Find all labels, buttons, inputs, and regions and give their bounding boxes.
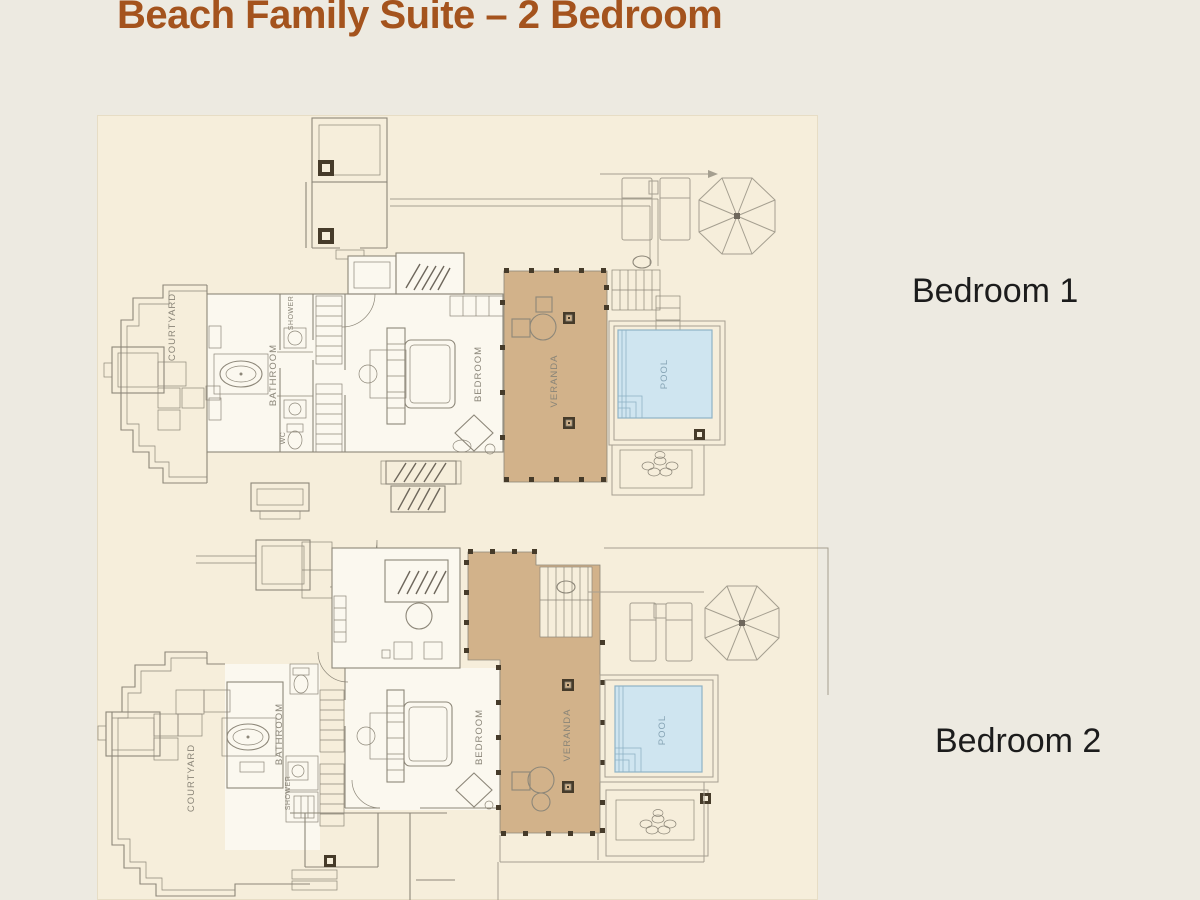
pool-area	[609, 321, 725, 495]
umbrella-icon	[705, 586, 779, 660]
room-label-shower: SHOWER	[285, 776, 292, 811]
slide: Beach Family Suite – 2 Bedroom	[0, 0, 1200, 900]
floorplan-bedroom-1: COURTYARD BATHROOM SHOWER WC BEDROOM VER…	[97, 115, 818, 507]
room-label-bedroom: BEDROOM	[474, 709, 485, 765]
page-title: Beach Family Suite – 2 Bedroom	[117, 0, 722, 37]
entry-pavilion-icon	[306, 118, 718, 266]
terrace-lines	[588, 548, 828, 695]
room-label-pool: POOL	[657, 715, 668, 745]
room-label-shower: SHOWER	[288, 296, 295, 331]
room-label-veranda: VERANDA	[562, 709, 573, 762]
courtyard-outline	[104, 285, 220, 483]
room-label-bedroom: BEDROOM	[473, 346, 484, 402]
caption-bedroom-2: Bedroom 2	[935, 722, 1101, 761]
floorplan-bedroom-2: COURTYARD BATHROOM SHOWER BEDROOM VERAND…	[97, 505, 818, 900]
bench-icon	[381, 461, 461, 484]
room-label-wc: WC	[280, 432, 287, 445]
rocks-icon	[642, 452, 678, 477]
umbrella-icon	[699, 178, 775, 254]
room-label-veranda: VERANDA	[549, 355, 560, 408]
room-label-courtyard: COURTYARD	[186, 744, 197, 812]
villa-floor	[207, 294, 503, 452]
sun-loungers-icon	[622, 178, 690, 240]
room-label-bathroom: BATHROOM	[268, 344, 279, 406]
sun-loungers-icon	[630, 603, 692, 661]
rocks-icon	[640, 810, 676, 835]
room-label-courtyard: COURTYARD	[167, 293, 178, 361]
room-label-pool: POOL	[659, 359, 670, 389]
room-label-bathroom: BATHROOM	[274, 703, 285, 765]
caption-bedroom-1: Bedroom 1	[912, 272, 1078, 311]
